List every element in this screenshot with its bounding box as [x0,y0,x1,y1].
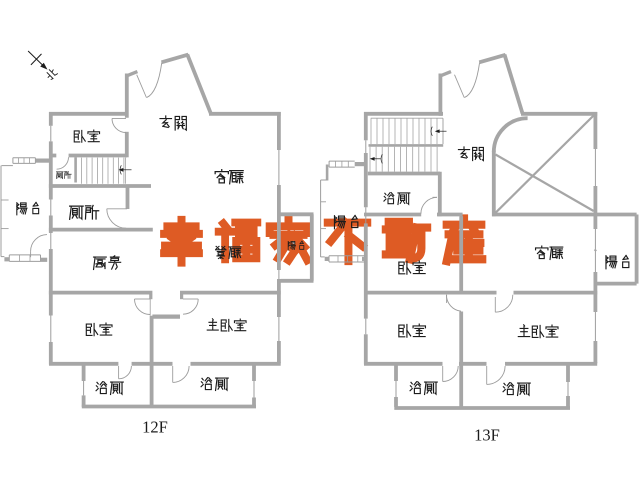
svg-text:12F: 12F [142,418,168,437]
svg-text:13F: 13F [474,426,500,445]
